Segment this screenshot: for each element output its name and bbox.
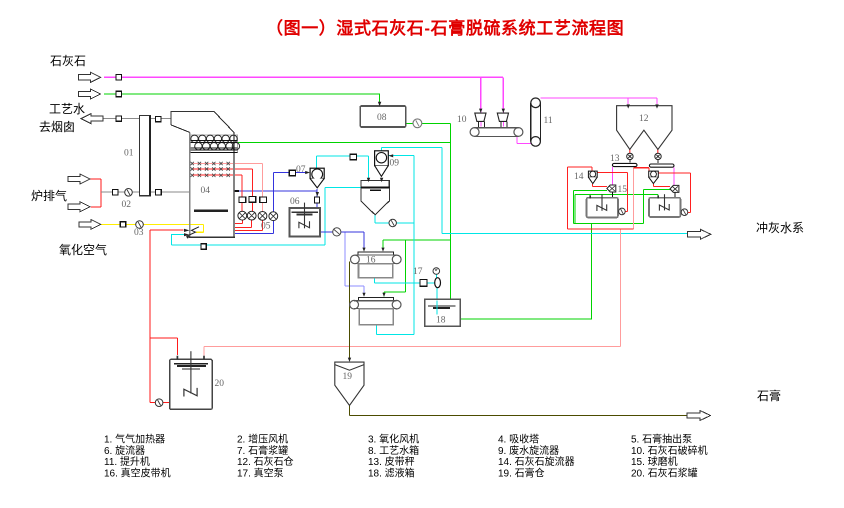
svg-text:07: 07	[296, 165, 306, 175]
svg-text:2. 增压风机: 2. 增压风机	[237, 433, 288, 446]
svg-text:16: 16	[366, 256, 376, 266]
svg-text:19. 石膏仓: 19. 石膏仓	[498, 466, 545, 479]
svg-text:11: 11	[544, 116, 553, 126]
svg-text:17. 真空泵: 17. 真空泵	[237, 466, 284, 479]
svg-text:08: 08	[377, 113, 387, 123]
svg-text:17: 17	[413, 267, 423, 277]
svg-text:3. 氧化风机: 3. 氧化风机	[368, 433, 419, 446]
svg-text:7. 石膏浆罐: 7. 石膏浆罐	[237, 444, 288, 457]
svg-text:8. 工艺水箱: 8. 工艺水箱	[368, 444, 419, 457]
svg-text:16. 真空皮带机: 16. 真空皮带机	[104, 466, 171, 479]
svg-text:11. 提升机: 11. 提升机	[104, 455, 150, 468]
svg-text:15. 球磨机: 15. 球磨机	[631, 455, 678, 468]
svg-text:12. 石灰石仓: 12. 石灰石仓	[237, 455, 294, 468]
svg-text:04: 04	[201, 186, 211, 196]
svg-text:石灰石: 石灰石	[50, 54, 86, 68]
svg-text:19: 19	[343, 372, 353, 382]
svg-text:18: 18	[436, 316, 446, 326]
svg-text:01: 01	[124, 149, 134, 159]
svg-text:冲灰水系: 冲灰水系	[756, 220, 804, 235]
svg-text:炉排气: 炉排气	[31, 188, 67, 203]
svg-text:06: 06	[290, 197, 300, 207]
svg-text:03: 03	[134, 228, 144, 238]
svg-text:（图一）湿式石灰石-石膏脱硫系统工艺流程图: （图一）湿式石灰石-石膏脱硫系统工艺流程图	[266, 18, 624, 38]
svg-text:1. 气气加热器: 1. 气气加热器	[104, 433, 165, 446]
svg-text:14. 石灰石旋流器: 14. 石灰石旋流器	[498, 455, 575, 468]
svg-text:02: 02	[122, 200, 132, 210]
svg-text:6. 旋流器: 6. 旋流器	[104, 444, 145, 457]
svg-text:工艺水: 工艺水	[49, 102, 85, 116]
svg-text:10: 10	[457, 115, 467, 125]
svg-text:18. 滤液箱: 18. 滤液箱	[368, 466, 415, 479]
svg-text:10. 石灰石破碎机: 10. 石灰石破碎机	[631, 444, 708, 457]
svg-text:20: 20	[215, 379, 225, 389]
svg-text:氧化空气: 氧化空气	[59, 242, 107, 257]
svg-text:9. 废水旋流器: 9. 废水旋流器	[498, 444, 559, 457]
svg-text:5. 石膏抽出泵: 5. 石膏抽出泵	[631, 433, 692, 446]
svg-text:14: 14	[574, 172, 584, 182]
svg-text:15: 15	[618, 185, 628, 195]
svg-text:4. 吸收塔: 4. 吸收塔	[498, 433, 539, 446]
svg-text:05: 05	[261, 222, 271, 232]
svg-text:13. 皮带秤: 13. 皮带秤	[368, 455, 415, 468]
svg-text:去烟囱: 去烟囱	[39, 120, 75, 134]
svg-text:20. 石灰石浆罐: 20. 石灰石浆罐	[631, 466, 698, 479]
svg-text:09: 09	[390, 159, 400, 169]
svg-text:石膏: 石膏	[757, 388, 781, 403]
svg-text:13: 13	[610, 154, 620, 164]
svg-text:12: 12	[639, 114, 649, 124]
